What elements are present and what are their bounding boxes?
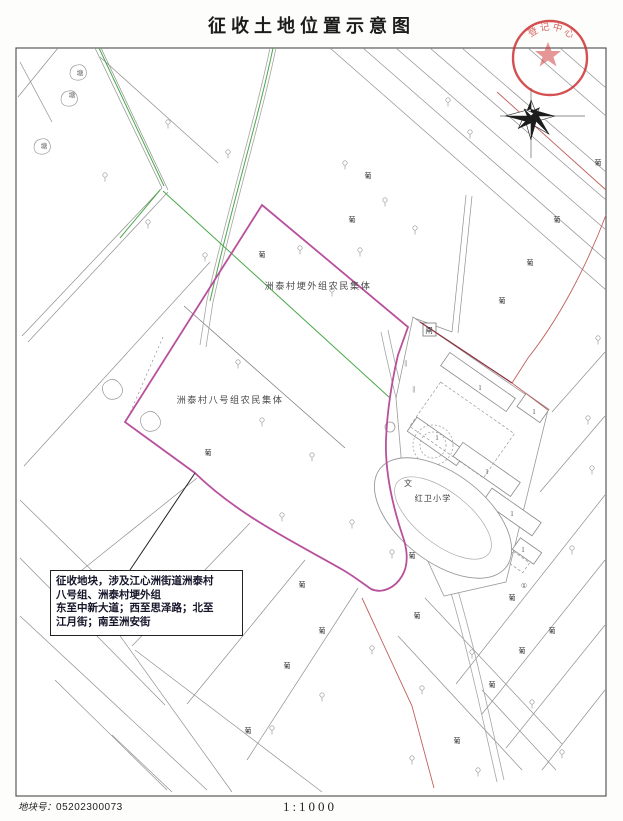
- vineyard-symbol: 葡: [245, 726, 252, 735]
- vineyard-symbol: 葡: [365, 171, 372, 180]
- pond-label: 塘: [77, 68, 84, 77]
- map-scale: 1:1000: [250, 799, 370, 815]
- vineyard-symbol: 葡: [284, 661, 291, 670]
- parcel-number-label: 地块号：: [18, 803, 56, 813]
- annotation-box: 征收地块，涉及江心洲街道洲泰村 八号组、洲泰村埂外组 东至中新大道；西至思泽路；…: [50, 570, 243, 636]
- floor-count-label: 1: [510, 510, 514, 518]
- map-canvas: 洲泰村埂外组农民集体 洲泰村八号组农民集体 红卫小学 文 闸 ① ∥ ∥ 葡葡葡…: [0, 0, 623, 821]
- annotation-line: 征收地块，涉及江心洲街道洲泰村: [56, 575, 238, 589]
- parcel-number-field: 地块号：05202300073: [18, 799, 123, 813]
- label-school-name: 红卫小学: [415, 493, 452, 503]
- vineyard-symbol: 葡: [509, 593, 516, 602]
- sluice-gate-label: 闸: [425, 326, 433, 335]
- map-sheet: 征收土地位置示意图: [0, 0, 623, 821]
- label-collective-bahao: 洲泰村八号组农民集体: [177, 394, 284, 405]
- vineyard-symbol: 葡: [259, 250, 266, 259]
- floor-count-label: 1: [478, 384, 482, 392]
- vineyard-symbol: 葡: [299, 580, 306, 589]
- pond-label: 塘: [41, 141, 48, 150]
- vineyard-symbol: 葡: [527, 258, 534, 267]
- parcel-number-value: 05202300073: [56, 802, 123, 813]
- vineyard-symbol: 葡: [519, 646, 526, 655]
- vineyard-symbol: 葡: [319, 626, 326, 635]
- vineyard-symbol: 葡: [554, 215, 561, 224]
- school-map-symbol: 文: [404, 478, 412, 488]
- floor-count-label: 1: [435, 434, 439, 442]
- vineyard-symbol: 葡: [414, 611, 421, 620]
- annotation-line: 八号组、洲泰村埂外组: [56, 589, 238, 603]
- floor-count-label: 1: [485, 468, 489, 476]
- vineyard-symbol: 葡: [499, 296, 506, 305]
- annotation-line: 东至中新大道；西至思泽路；北至: [56, 602, 238, 616]
- circled-one-label: ①: [521, 582, 527, 590]
- slope-mark: ∥: [412, 386, 415, 394]
- pond-label: 塘: [69, 90, 76, 99]
- vineyard-symbol: 葡: [409, 551, 416, 560]
- floor-count-label: 1: [532, 408, 536, 416]
- slope-mark: ∥: [404, 360, 407, 368]
- vineyard-symbol: 葡: [454, 736, 461, 745]
- vineyard-symbol: 葡: [489, 680, 496, 689]
- vineyard-symbol: 葡: [595, 158, 602, 167]
- vineyard-symbol: 葡: [549, 626, 556, 635]
- label-collective-gengwai: 洲泰村埂外组农民集体: [265, 280, 372, 291]
- vineyard-symbol: 葡: [205, 448, 212, 457]
- annotation-line: 江月街；南至洲安街: [56, 616, 238, 630]
- floor-count-label: 1: [521, 546, 525, 554]
- vineyard-symbol: 葡: [349, 215, 356, 224]
